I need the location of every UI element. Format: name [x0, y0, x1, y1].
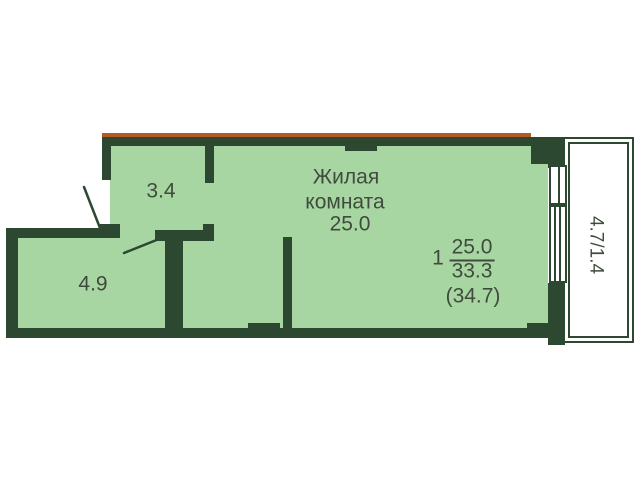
room-label-storage-area: 4.9: [78, 274, 107, 295]
summary-total-area: 33.3: [452, 261, 493, 282]
door-swing-overlay: [0, 0, 640, 481]
room-label-living-line2: комната: [305, 192, 384, 213]
entry-door-swing-line: [84, 187, 100, 228]
room-label-living-area: 25.0: [330, 214, 371, 235]
storage-door-swing-line: [124, 239, 159, 253]
summary-living-area: 25.0: [450, 237, 495, 262]
balcony-area-label: 4.7/1.4: [587, 216, 606, 274]
room-label-hallway-area: 3.4: [146, 181, 175, 202]
summary-rooms-count: 1: [432, 248, 444, 269]
room-label-living-line1: Жилая: [313, 167, 379, 188]
floor-plan-canvas: 3.4 Жилая комната 25.0 4.9 1 25.0 33.3 (…: [0, 0, 640, 481]
summary-total-with-balcony: (34.7): [446, 286, 501, 307]
